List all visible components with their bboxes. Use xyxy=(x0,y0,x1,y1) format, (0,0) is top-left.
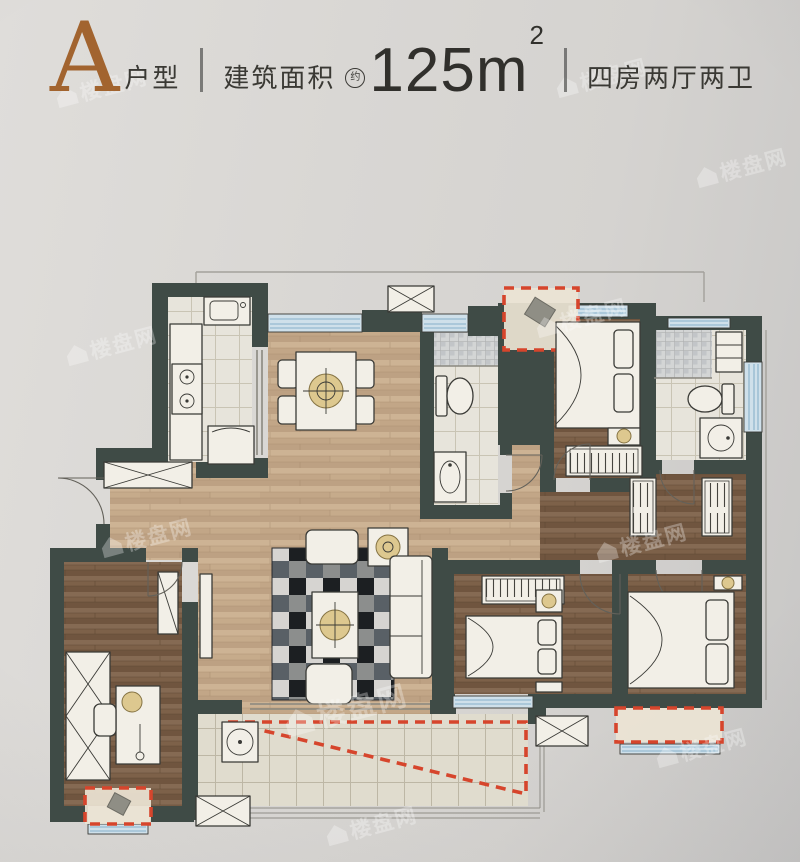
dining-chair xyxy=(354,360,374,388)
plan-letter: A xyxy=(50,21,119,96)
desk-chair xyxy=(94,704,116,736)
header-divider-2 xyxy=(564,48,567,92)
dining-window xyxy=(268,314,362,332)
hall-window xyxy=(422,314,468,332)
header-divider-1 xyxy=(200,48,203,92)
watermark: 楼盘网 xyxy=(694,145,790,192)
watermark: 楼盘网 xyxy=(64,323,160,370)
coffee-table xyxy=(312,592,358,658)
area-unit: m xyxy=(476,36,529,105)
bath2-window xyxy=(668,318,730,328)
cabinet-icon xyxy=(158,572,178,634)
sofa xyxy=(390,556,432,678)
svg-text:楼盘网: 楼盘网 xyxy=(347,803,420,844)
ac-unit-icon xyxy=(536,716,588,746)
wardrobe-icon xyxy=(702,478,732,536)
dining-chair xyxy=(278,396,298,424)
approx-badge-icon: 约 xyxy=(345,68,365,88)
fridge-icon xyxy=(208,426,254,464)
nightstand xyxy=(536,590,562,612)
plan-type-label: 户型 xyxy=(124,65,180,96)
bath2-side-window xyxy=(744,362,762,432)
entry-door xyxy=(58,478,104,524)
dining-chair xyxy=(354,396,374,424)
pillow xyxy=(614,330,633,368)
watermark: 楼盘网 xyxy=(324,803,420,850)
master-bedroom xyxy=(628,576,742,688)
washbasin-icon xyxy=(700,418,742,458)
wardrobe-icon xyxy=(566,446,642,476)
pillow xyxy=(706,600,728,640)
svg-text:楼盘网: 楼盘网 xyxy=(717,145,790,186)
shoe-cabinet-icon xyxy=(104,462,192,488)
armchair xyxy=(306,530,358,564)
area-value: 125m2 xyxy=(369,46,544,96)
pillow xyxy=(614,374,633,412)
bath2-shower-floor xyxy=(654,330,712,378)
svg-text:楼盘网: 楼盘网 xyxy=(87,323,160,364)
nightstand xyxy=(714,576,742,590)
floorplan: 楼盘网 楼盘网 楼盘网 楼盘网 楼盘网 楼盘网 楼盘网 xyxy=(0,250,800,862)
rooms-summary: 四房两厅两卫 xyxy=(587,65,755,96)
desk xyxy=(116,686,160,764)
toilet-icon xyxy=(436,376,473,416)
bay-window-study xyxy=(85,788,151,824)
washing-machine-icon xyxy=(222,722,258,762)
area-exponent: 2 xyxy=(529,20,544,50)
pillow xyxy=(706,644,728,684)
wardrobe-icon xyxy=(630,478,656,536)
kitchen-sliding-door xyxy=(257,350,262,455)
nightstand xyxy=(608,428,640,445)
bath-shelf xyxy=(716,332,742,372)
ac-unit-icon xyxy=(196,796,250,826)
area-label: 建筑面积 xyxy=(223,65,335,96)
nightstand xyxy=(536,682,562,692)
balcony xyxy=(222,722,258,762)
area-number: 125 xyxy=(369,36,475,105)
bedroom-1 xyxy=(554,322,642,480)
ac-unit-icon xyxy=(388,286,434,312)
tv-cabinet xyxy=(200,574,212,658)
stove-icon xyxy=(172,364,202,414)
bedroom3-window xyxy=(453,696,533,708)
pillow xyxy=(538,649,556,674)
washbasin-icon xyxy=(434,452,466,502)
kitchen-sink-icon xyxy=(204,297,250,325)
toilet-icon xyxy=(688,384,734,414)
pillow xyxy=(538,620,556,645)
plan-header: A 户型 建筑面积 约 125m2 四房两厅两卫 xyxy=(50,12,755,96)
dining-chair xyxy=(278,360,298,388)
